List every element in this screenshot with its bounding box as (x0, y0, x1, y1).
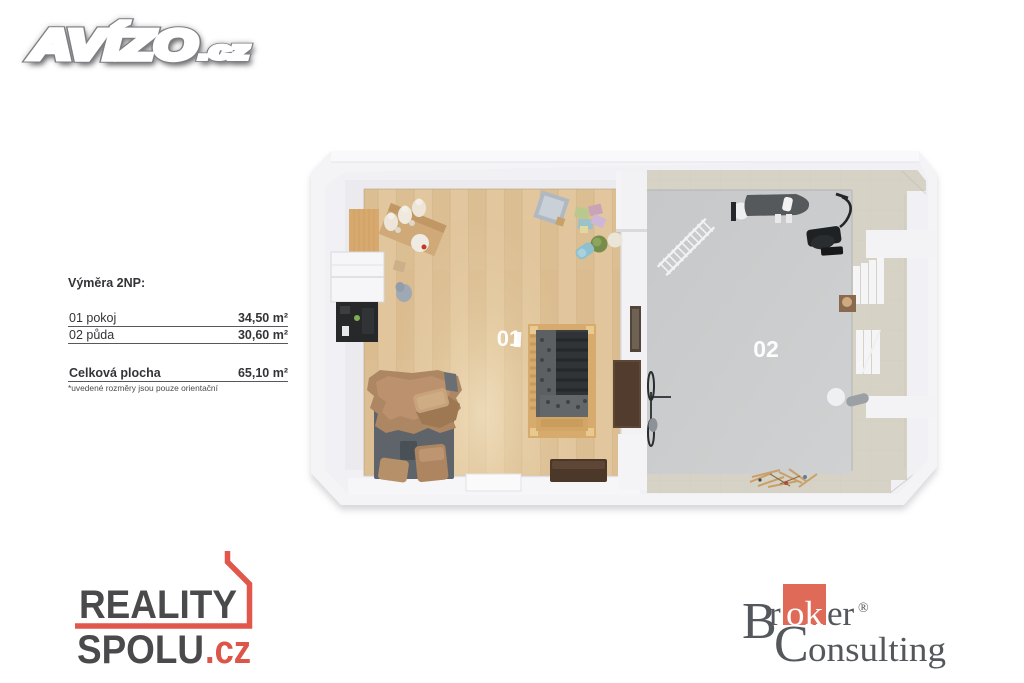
svg-text:er: er (827, 594, 855, 633)
svg-text:01: 01 (497, 326, 521, 351)
svg-text:®: ® (858, 601, 869, 616)
svg-text:.cz: .cz (205, 628, 251, 672)
svg-text:02: 02 (753, 336, 779, 362)
svg-text:REALITY: REALITY (79, 583, 237, 627)
svg-text:C: C (774, 616, 809, 673)
svg-text:SPOLU: SPOLU (77, 628, 204, 672)
svg-text:onsulting: onsulting (808, 630, 946, 669)
